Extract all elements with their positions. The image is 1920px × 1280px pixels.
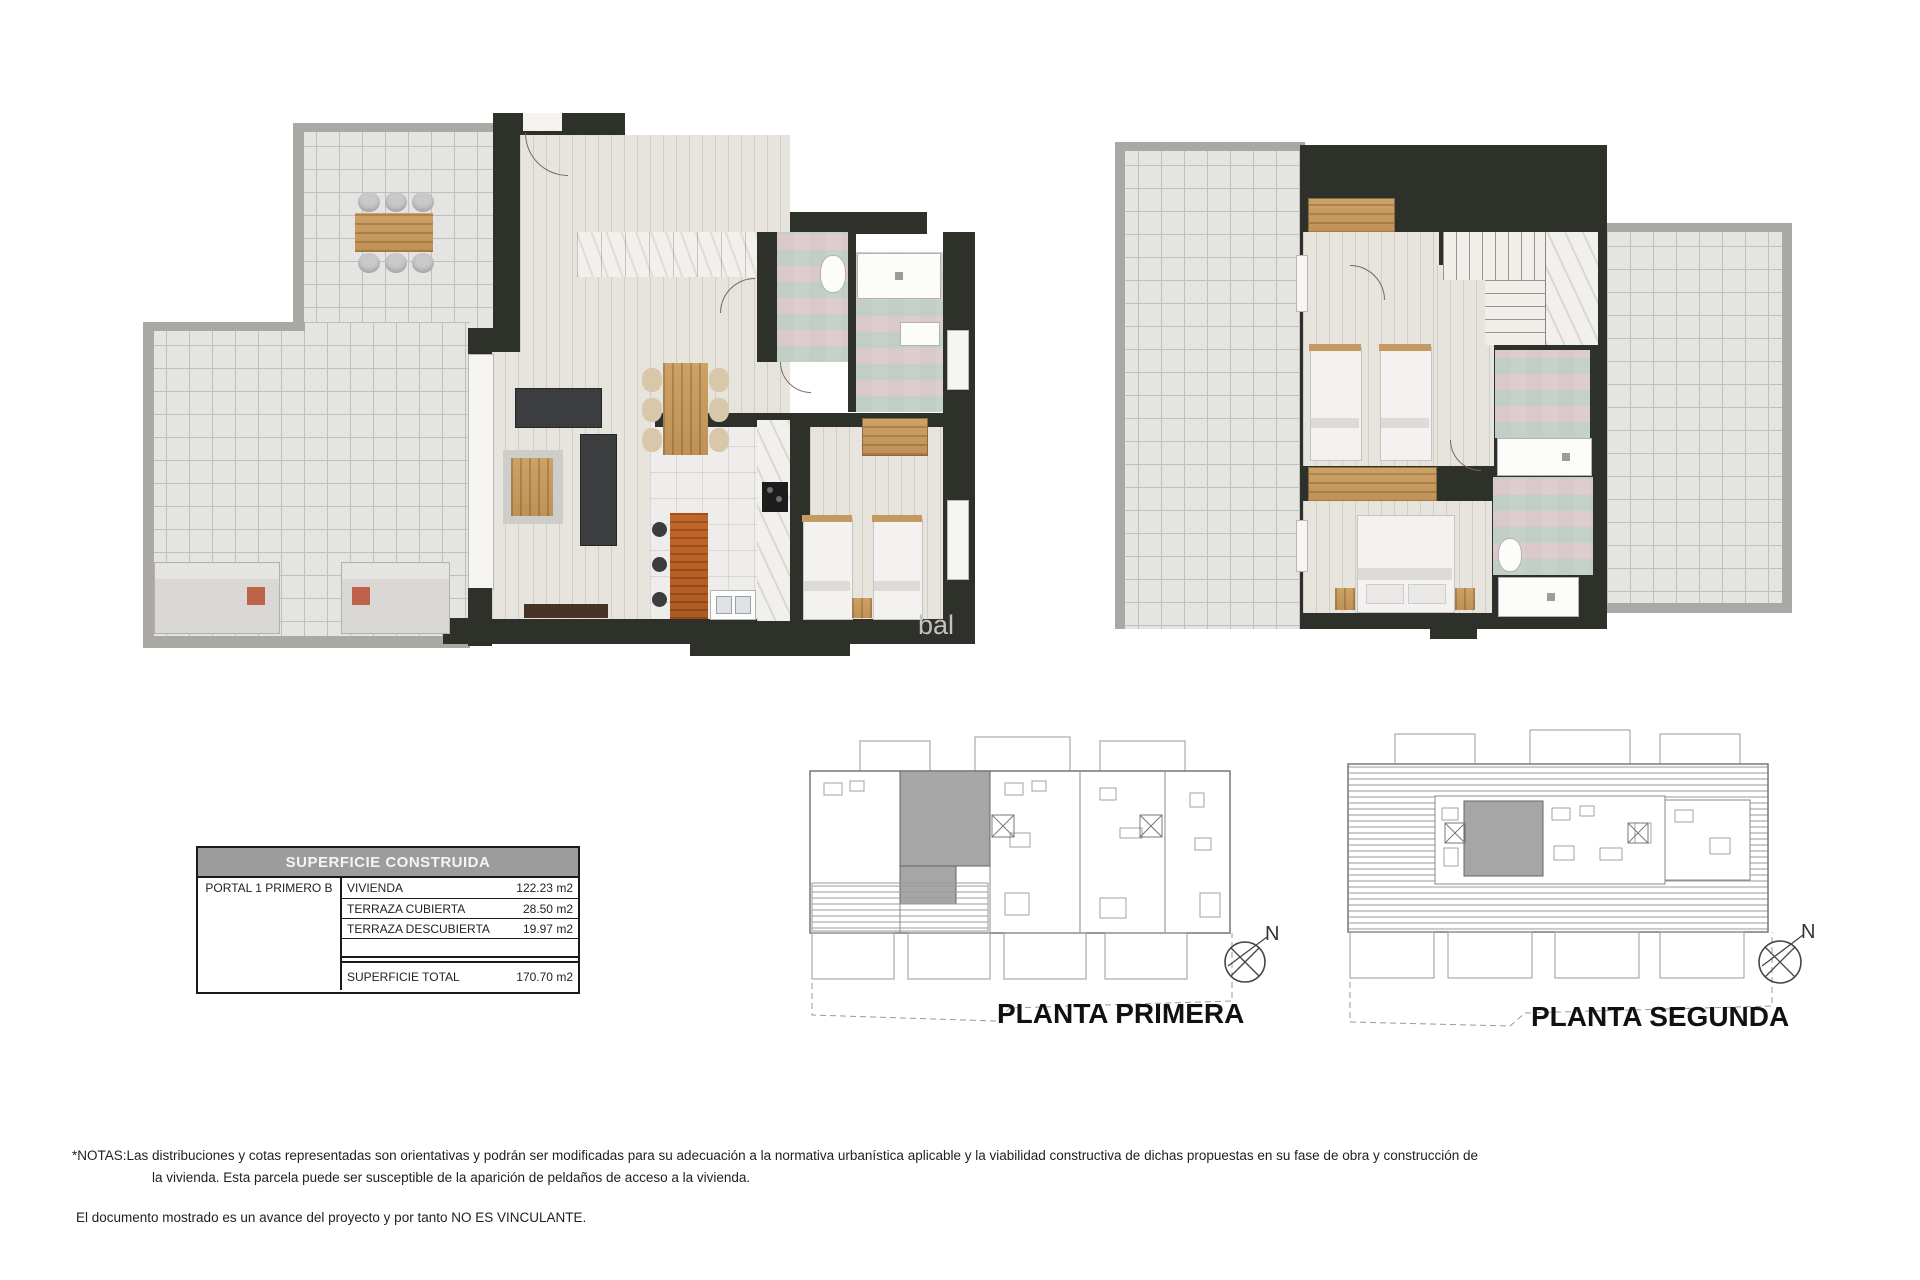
window bbox=[1296, 255, 1308, 312]
laundry-counter bbox=[577, 232, 757, 277]
burner bbox=[767, 487, 773, 493]
terrace-wall bbox=[143, 322, 305, 331]
dining-chair bbox=[642, 368, 662, 392]
table-row: TERRAZA DESCUBIERTA 19.97 m2 bbox=[342, 919, 578, 939]
terrace-sofa bbox=[154, 562, 280, 634]
empty-row bbox=[342, 939, 578, 958]
pillow bbox=[1366, 584, 1404, 604]
compass-icon: N bbox=[1750, 922, 1816, 986]
dining-table bbox=[663, 363, 708, 455]
coffee-table bbox=[511, 458, 553, 516]
terrace-wall bbox=[1782, 223, 1792, 613]
living-sofa bbox=[515, 388, 602, 428]
shower-drain bbox=[1562, 453, 1570, 461]
outdoor-chair bbox=[385, 192, 407, 212]
outdoor-dining-table bbox=[355, 213, 433, 252]
sink-bowl bbox=[735, 596, 751, 614]
row-label: VIVIENDA bbox=[347, 881, 403, 895]
bed-fold bbox=[1358, 568, 1452, 580]
wall bbox=[757, 232, 777, 362]
terrace-wall bbox=[293, 123, 495, 132]
ground-terraces bbox=[812, 933, 1187, 979]
terrace-wall bbox=[1607, 603, 1792, 613]
sofa-back bbox=[342, 563, 449, 579]
roof-dormers bbox=[860, 737, 1185, 771]
planta-primera-label: PLANTA PRIMERA bbox=[997, 998, 1244, 1030]
sofa-cushion bbox=[247, 587, 265, 605]
wardrobe bbox=[862, 418, 928, 456]
single-bed bbox=[1310, 347, 1362, 461]
notes-line-3: El documento mostrado es un avance del p… bbox=[76, 1210, 586, 1225]
wall bbox=[468, 328, 495, 354]
notes-line-2: la vivienda. Esta parcela puede ser susc… bbox=[152, 1170, 750, 1185]
compass-n-label: N bbox=[1265, 924, 1279, 945]
bathroom1-floor bbox=[777, 232, 848, 362]
shower-drain bbox=[895, 272, 903, 280]
single-bed bbox=[1380, 347, 1432, 461]
pillow bbox=[1408, 584, 1446, 604]
floor-plan-primera: bal bbox=[120, 110, 982, 670]
apartments-area bbox=[1665, 800, 1750, 880]
stair-landing bbox=[1545, 232, 1598, 345]
outdoor-chair bbox=[412, 192, 434, 212]
washbasin bbox=[900, 322, 940, 346]
window bbox=[947, 500, 969, 580]
cooktop bbox=[762, 482, 788, 512]
outdoor-chair bbox=[412, 253, 434, 273]
site-plan-segunda-drawing bbox=[1340, 728, 1800, 1038]
shower-tray bbox=[1497, 438, 1592, 476]
media-console bbox=[524, 604, 608, 618]
wall bbox=[443, 618, 975, 644]
wardrobe bbox=[1308, 198, 1395, 234]
bar-stool bbox=[652, 557, 667, 572]
sink-bowl bbox=[716, 596, 732, 614]
shower-tray bbox=[857, 253, 941, 299]
table-row: VIVIENDA 122.23 m2 bbox=[342, 878, 578, 899]
outdoor-chair bbox=[385, 253, 407, 273]
nightstand bbox=[1455, 588, 1475, 610]
dining-chair bbox=[642, 398, 662, 422]
compass-primera: N bbox=[1215, 924, 1281, 988]
window bbox=[947, 330, 969, 390]
planta-segunda-label: PLANTA SEGUNDA bbox=[1531, 1001, 1789, 1033]
terrace-wall bbox=[1115, 142, 1305, 151]
bed-headboard bbox=[1309, 344, 1361, 351]
living-sofa bbox=[580, 434, 617, 546]
shower-drain bbox=[1547, 593, 1555, 601]
single-bed bbox=[873, 518, 923, 620]
bed-fold bbox=[1311, 418, 1359, 428]
nightstand bbox=[1335, 588, 1355, 610]
toilet bbox=[1498, 538, 1522, 572]
row-value: 19.97 m2 bbox=[523, 922, 573, 936]
notes-line-1: *NOTAS:Las distribuciones y cotas repres… bbox=[72, 1148, 1478, 1163]
left-terrace-floor bbox=[1115, 142, 1305, 629]
watermark: bal bbox=[918, 610, 954, 641]
terrace-wall bbox=[1115, 142, 1125, 629]
terrace-wall bbox=[143, 636, 470, 648]
outdoor-chair bbox=[358, 192, 380, 212]
bed-fold bbox=[874, 581, 920, 591]
total-label: SUPERFICIE TOTAL bbox=[347, 970, 460, 984]
site-plan-segunda bbox=[1340, 728, 1800, 1038]
row-value: 122.23 m2 bbox=[516, 881, 573, 895]
bed-fold bbox=[1381, 418, 1429, 428]
burner bbox=[776, 496, 782, 502]
window bbox=[1296, 520, 1308, 572]
dining-chair bbox=[642, 428, 662, 452]
toilet bbox=[820, 255, 846, 293]
wall bbox=[493, 113, 520, 363]
bed-headboard bbox=[1379, 344, 1431, 351]
plan-sheet: { "document": { "watermark": "bal", "sur… bbox=[0, 0, 1920, 1280]
wall bbox=[1430, 629, 1477, 639]
stairs-lower bbox=[1485, 280, 1545, 345]
deck-hatch bbox=[812, 883, 988, 931]
floor-plan-segunda bbox=[1110, 140, 1810, 645]
nightstand bbox=[852, 598, 872, 618]
site-plan-primera bbox=[800, 733, 1250, 1023]
highlighted-unit bbox=[1464, 801, 1543, 876]
terrace-wall bbox=[143, 322, 154, 648]
stairs-upper bbox=[1443, 232, 1545, 280]
table-row: TERRAZA CUBIERTA 28.50 m2 bbox=[342, 899, 578, 919]
surface-table-title: SUPERFICIE CONSTRUIDA bbox=[198, 848, 578, 878]
double-bed bbox=[1357, 515, 1455, 613]
compass-icon: N bbox=[1215, 924, 1281, 988]
ground-terraces bbox=[1350, 932, 1744, 978]
row-label: TERRAZA CUBIERTA bbox=[347, 902, 465, 916]
surface-table: SUPERFICIE CONSTRUIDA PORTAL 1 PRIMERO B… bbox=[196, 846, 580, 994]
terrace-wall bbox=[293, 123, 304, 333]
site-plan-primera-drawing bbox=[800, 733, 1250, 1023]
sofa-cushion bbox=[352, 587, 370, 605]
total-row: SUPERFICIE TOTAL 170.70 m2 bbox=[342, 963, 578, 990]
row-label: TERRAZA DESCUBIERTA bbox=[347, 922, 490, 936]
compass-segunda: N bbox=[1750, 922, 1816, 986]
bathroom1-floor bbox=[1495, 350, 1590, 438]
wall bbox=[943, 232, 975, 644]
sofa-back bbox=[155, 563, 279, 579]
kitchen-counter bbox=[757, 420, 790, 621]
dining-chair bbox=[709, 398, 729, 422]
bed-headboard bbox=[872, 515, 922, 522]
right-terrace-floor bbox=[1607, 223, 1792, 613]
bed-fold bbox=[804, 581, 850, 591]
terrace-wall bbox=[1607, 223, 1792, 232]
wall bbox=[690, 642, 850, 656]
kitchen-island bbox=[670, 513, 708, 619]
roof-dormers bbox=[1395, 730, 1740, 764]
total-value: 170.70 m2 bbox=[516, 970, 573, 984]
terrace-window bbox=[468, 354, 494, 590]
bar-stool bbox=[652, 592, 667, 607]
entrance-door-gap bbox=[523, 113, 562, 131]
bar-stool bbox=[652, 522, 667, 537]
single-bed bbox=[803, 518, 853, 620]
terrace-sofa bbox=[341, 562, 450, 634]
row-value: 28.50 m2 bbox=[523, 902, 573, 916]
wall bbox=[848, 232, 856, 412]
dining-chair bbox=[709, 428, 729, 452]
outdoor-chair bbox=[358, 253, 380, 273]
kitchen-sink bbox=[710, 590, 756, 620]
bedroom-bench bbox=[1308, 467, 1437, 503]
wall bbox=[468, 588, 492, 646]
compass-n-label: N bbox=[1801, 922, 1815, 943]
portal-cell: PORTAL 1 PRIMERO B bbox=[198, 878, 342, 990]
dining-chair bbox=[709, 368, 729, 392]
shower-tray bbox=[1498, 577, 1579, 617]
bed-headboard bbox=[802, 515, 852, 522]
